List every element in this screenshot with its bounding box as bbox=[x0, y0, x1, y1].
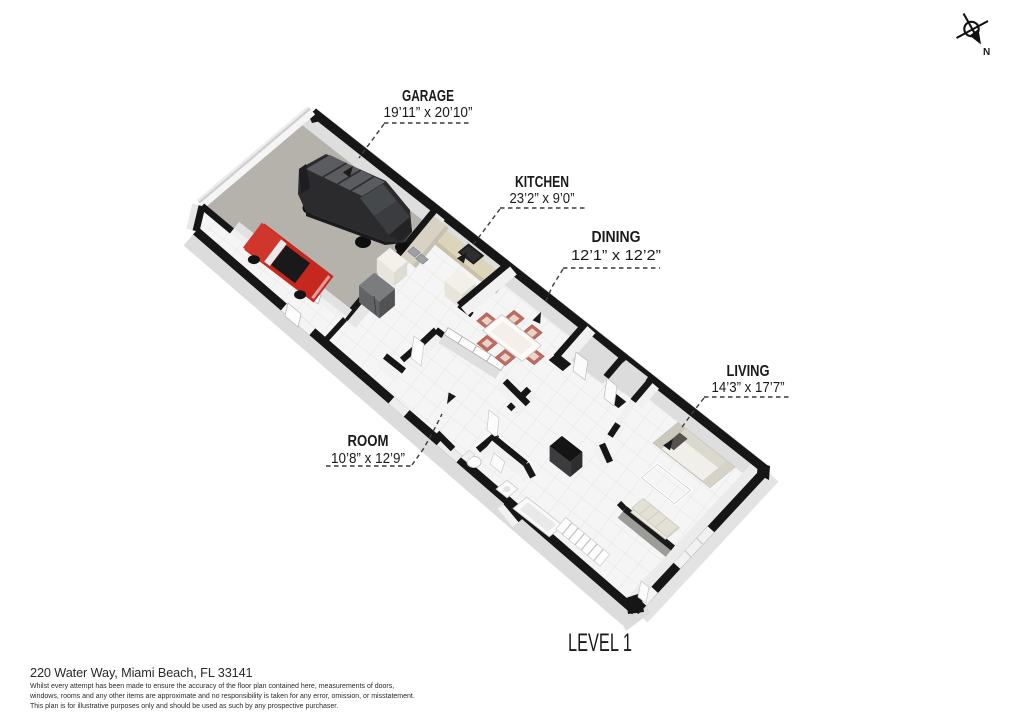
svg-text:LIVING: LIVING bbox=[727, 363, 770, 380]
svg-text:10’8” x 12’9”: 10’8” x 12’9” bbox=[331, 451, 405, 467]
svg-text:12’1” x 12’2”: 12’1” x 12’2” bbox=[571, 248, 661, 264]
svg-text:KITCHEN: KITCHEN bbox=[515, 174, 569, 191]
svg-text:LEVEL 1: LEVEL 1 bbox=[568, 629, 632, 657]
svg-text:19’11” x 20’10”: 19’11” x 20’10” bbox=[384, 105, 473, 121]
svg-text:GARAGE: GARAGE bbox=[402, 88, 454, 105]
svg-text:ROOM: ROOM bbox=[348, 433, 389, 450]
svg-text:N: N bbox=[983, 47, 990, 58]
svg-text:14’3” x 17’7”: 14’3” x 17’7” bbox=[712, 380, 785, 396]
svg-text:DINING: DINING bbox=[592, 229, 641, 246]
svg-text:23’2” x 9’0”: 23’2” x 9’0” bbox=[510, 191, 575, 207]
